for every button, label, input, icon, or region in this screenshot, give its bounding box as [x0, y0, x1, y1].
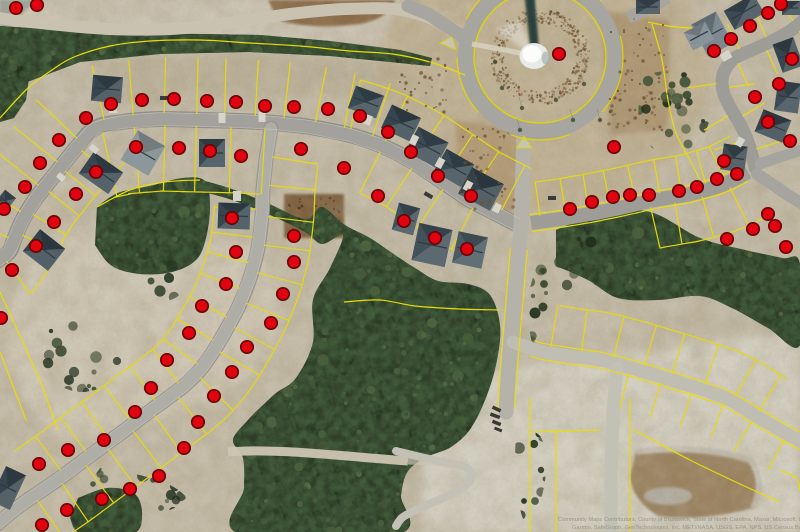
svg-text:Garmin, SafeGraph, GeoTechnolo: Garmin, SafeGraph, GeoTechnologies, Inc,… — [572, 525, 800, 531]
svg-text:Community Maps Contributors, C: Community Maps Contributors, County of B… — [558, 517, 800, 523]
